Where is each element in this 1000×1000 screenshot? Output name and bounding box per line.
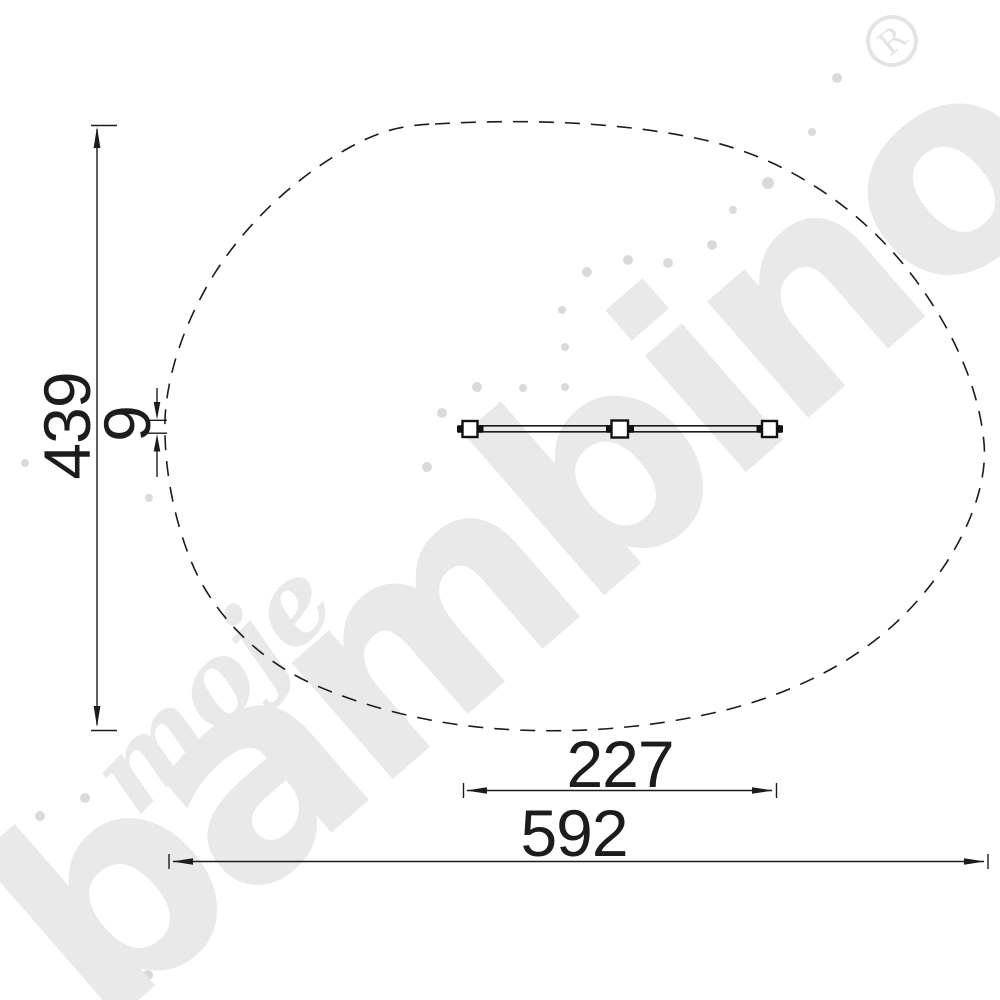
dim-592-arrow-left xyxy=(172,858,193,865)
drawing-layer: 439 9 227 xyxy=(0,0,1000,1000)
dim-227-value: 227 xyxy=(566,727,673,801)
beam-post-left xyxy=(463,421,478,437)
dim-439-arrow-up xyxy=(94,127,101,148)
plan-drawing-svg: 439 9 227 xyxy=(0,0,1000,1000)
dim-9-value: 9 xyxy=(90,406,164,442)
beam-post-center xyxy=(612,421,629,438)
dim-592-value: 592 xyxy=(520,796,627,870)
beam-posts xyxy=(463,421,778,438)
dim-592-arrow-right xyxy=(964,858,985,865)
technical-drawing-page: bambino moje R xyxy=(0,0,1000,1000)
beam-post-right xyxy=(762,421,777,437)
dim-227-arrow-right xyxy=(752,787,773,794)
balance-beam xyxy=(457,421,783,438)
dim-439-arrow-down xyxy=(94,706,101,727)
dim-227-arrow-left xyxy=(466,787,487,794)
